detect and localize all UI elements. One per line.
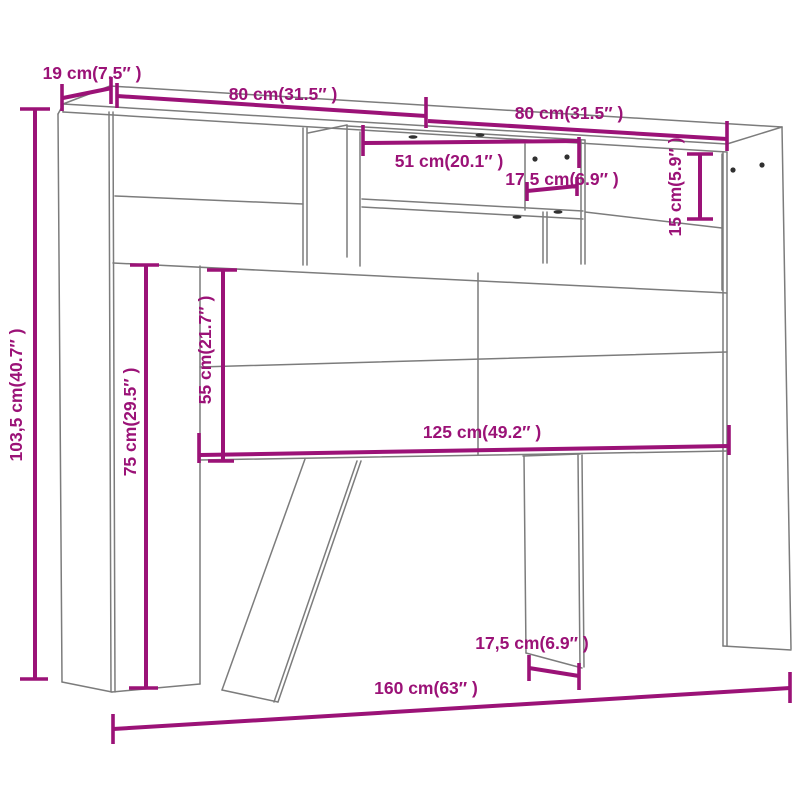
label-cubby-width: 17,5 cm(6.9″ ): [505, 169, 618, 189]
diagram-page: 19 cm(7.5″ ) 80 cm(31.5″ ) 80 cm(31.5″ )…: [0, 0, 800, 800]
dimension-diagram: 19 cm(7.5″ ) 80 cm(31.5″ ) 80 cm(31.5″ )…: [0, 0, 800, 800]
label-clearance-height: 75 cm(29.5″ ): [120, 368, 140, 477]
label-compartment-height: 15 cm(5.9″ ): [665, 138, 685, 237]
cam-mark: [554, 210, 563, 213]
cam-mark: [513, 215, 522, 218]
right-side-panel: [723, 127, 791, 650]
label-top-depth: 19 cm(7.5″ ): [43, 63, 142, 83]
screw-hole: [564, 154, 569, 159]
label-inner-width: 125 cm(49.2″ ): [423, 422, 541, 442]
middle-left-leg: [222, 459, 361, 702]
label-shelf-width: 51 cm(20.1″ ): [395, 151, 504, 171]
label-top-width-left: 80 cm(31.5″ ): [229, 84, 338, 104]
dim-line-compartment-height: [687, 154, 713, 219]
cam-mark: [409, 135, 418, 138]
cam-mark: [476, 133, 485, 136]
label-panel-height: 55 cm(21.7″ ): [195, 296, 215, 405]
label-total-width: 160 cm(63″ ): [374, 678, 478, 698]
label-total-height: 103,5 cm(40.7″ ): [6, 329, 26, 462]
screw-hole: [730, 167, 735, 172]
screw-hole: [532, 156, 537, 161]
label-leg-depth: 17,5 cm(6.9″ ): [475, 633, 588, 653]
screw-hole: [759, 162, 764, 167]
label-top-width-right: 80 cm(31.5″ ): [515, 103, 624, 123]
